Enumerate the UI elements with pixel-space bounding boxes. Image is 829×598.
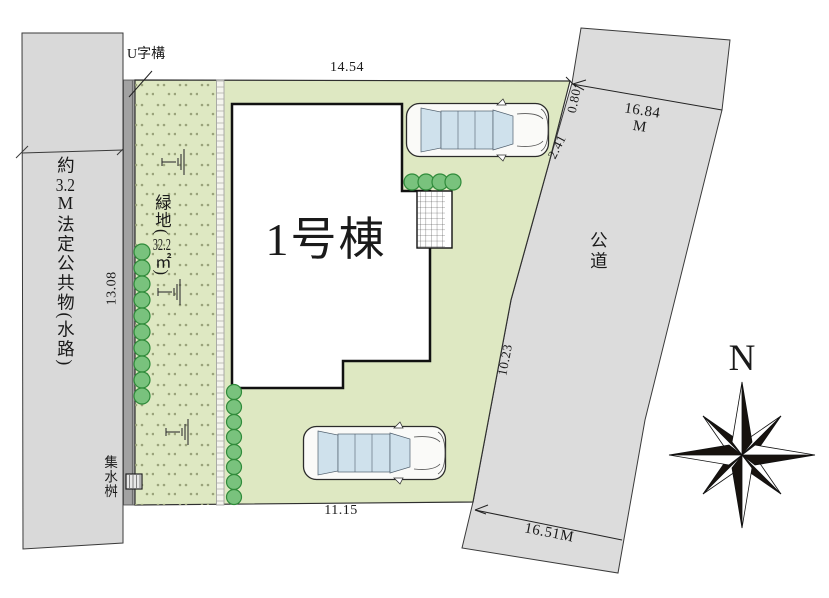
green-space-name: 緑地 <box>152 194 171 229</box>
catch-basin-box <box>126 474 142 489</box>
fence-ticks <box>217 80 225 505</box>
paren-close: ) <box>55 359 75 367</box>
paren-close: ) <box>152 270 171 277</box>
car-bottom <box>304 422 446 484</box>
green-space-unit: ㎡ <box>152 252 171 270</box>
green-space-label: 緑地(32.2㎡) <box>153 194 170 276</box>
compass-north-label: N <box>724 340 760 379</box>
green-space-texture <box>135 80 217 505</box>
public-road-label: 公道 <box>589 231 607 272</box>
terrace-hatch <box>417 191 445 248</box>
building-label: 1号棟 <box>236 216 416 264</box>
waterway-label-unit: M <box>55 193 75 215</box>
waterway-label-width: 3.2 <box>55 176 75 194</box>
green-space-area: 32.2 <box>152 236 171 253</box>
waterway-label-prefix: 約 <box>55 156 75 176</box>
car-top <box>407 99 549 161</box>
catch-basin-label: 集水桝 <box>102 455 116 499</box>
dimension-13-08: 13.08 <box>106 264 121 312</box>
site-plan: U字構 約3.2M法定公共物(水路) 13.08 集水桝 緑地(32.2㎡) 1… <box>0 0 829 598</box>
u-gutter-label: U字構 <box>127 48 165 63</box>
dimension-bottom: 11.15 <box>317 504 365 519</box>
waterway-label-body: 法定公共物 <box>55 215 75 313</box>
site-plan-drawing <box>0 0 829 598</box>
dimension-top: 14.54 <box>323 61 371 76</box>
waterway-label-note: 水路 <box>55 320 75 359</box>
compass-rose <box>669 382 815 528</box>
u-gutter-strip <box>124 80 136 505</box>
waterway-label: 約3.2M法定公共物(水路) <box>56 156 74 367</box>
